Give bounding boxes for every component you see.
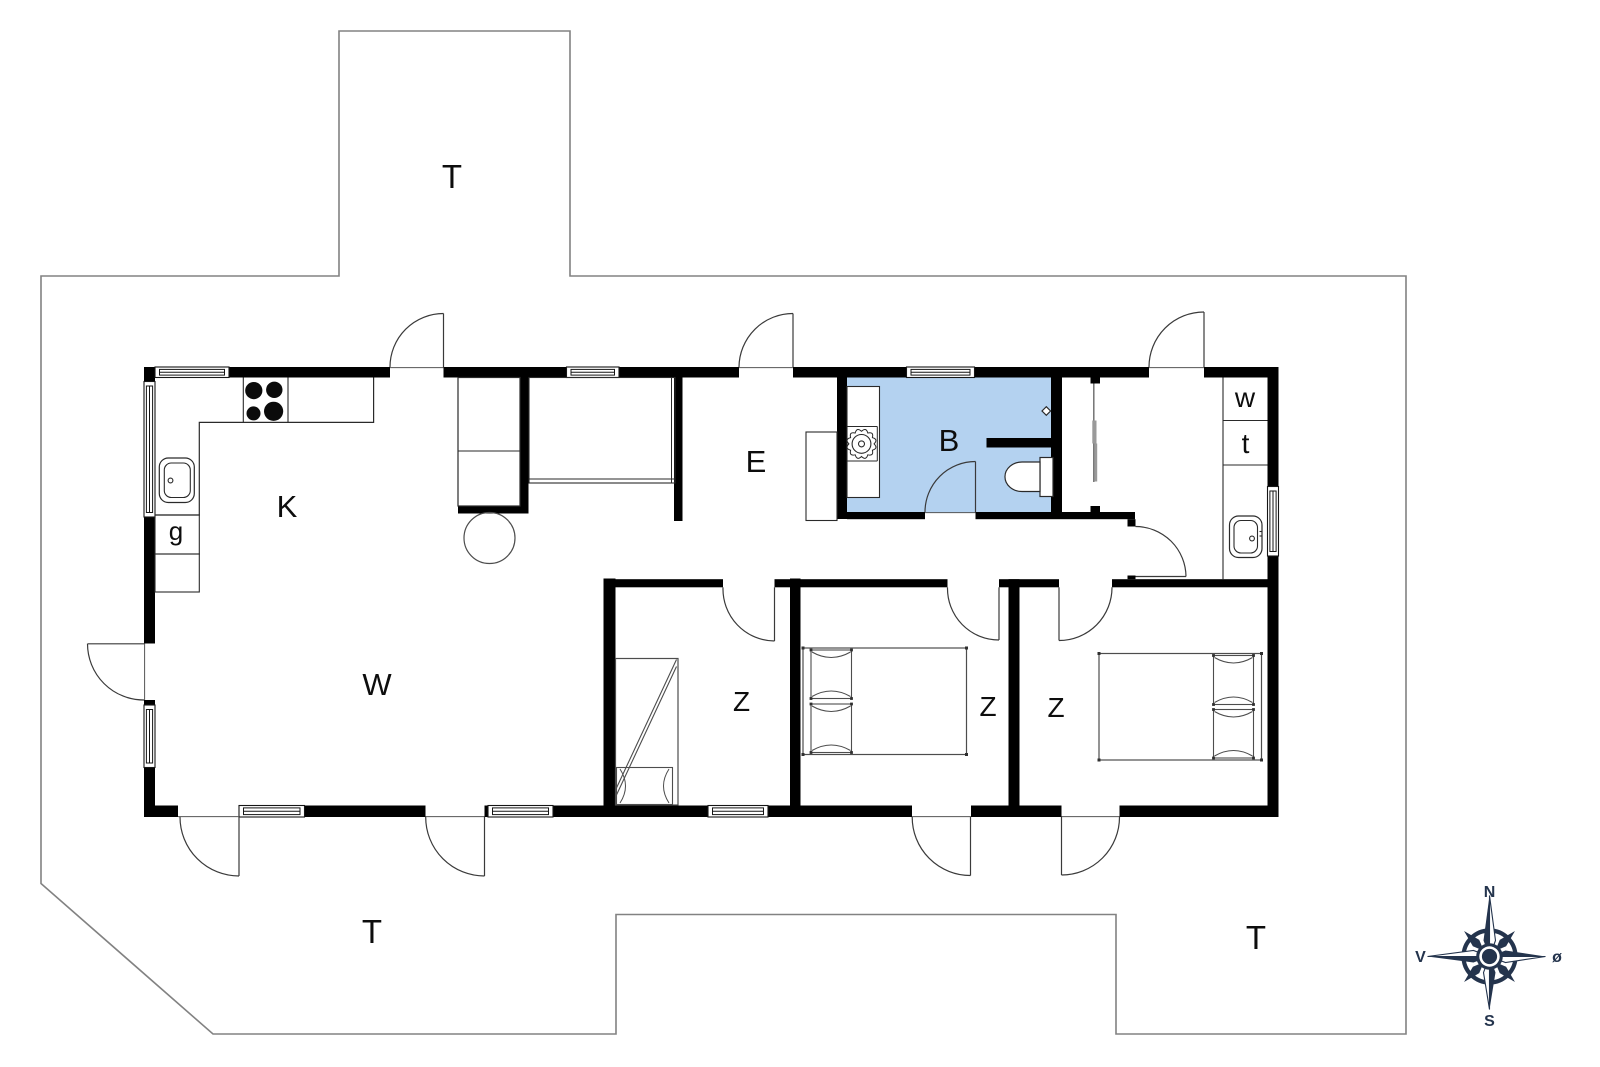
svg-text:B: B [939,423,960,458]
svg-text:T: T [442,158,462,195]
svg-text:g: g [169,516,183,546]
svg-text:N: N [1484,884,1496,901]
svg-text:E: E [746,444,767,479]
svg-text:w: w [1234,382,1256,413]
svg-text:T: T [1246,919,1266,956]
svg-text:T: T [362,913,382,950]
svg-text:W: W [362,667,392,702]
svg-text:Z: Z [1047,692,1064,723]
svg-text:V: V [1415,949,1426,966]
svg-text:S: S [1484,1013,1495,1030]
svg-text:K: K [277,489,298,524]
svg-text:Z: Z [979,691,996,722]
svg-text:t: t [1242,428,1250,459]
svg-text:Z: Z [733,686,750,717]
svg-text:ø: ø [1552,949,1562,966]
